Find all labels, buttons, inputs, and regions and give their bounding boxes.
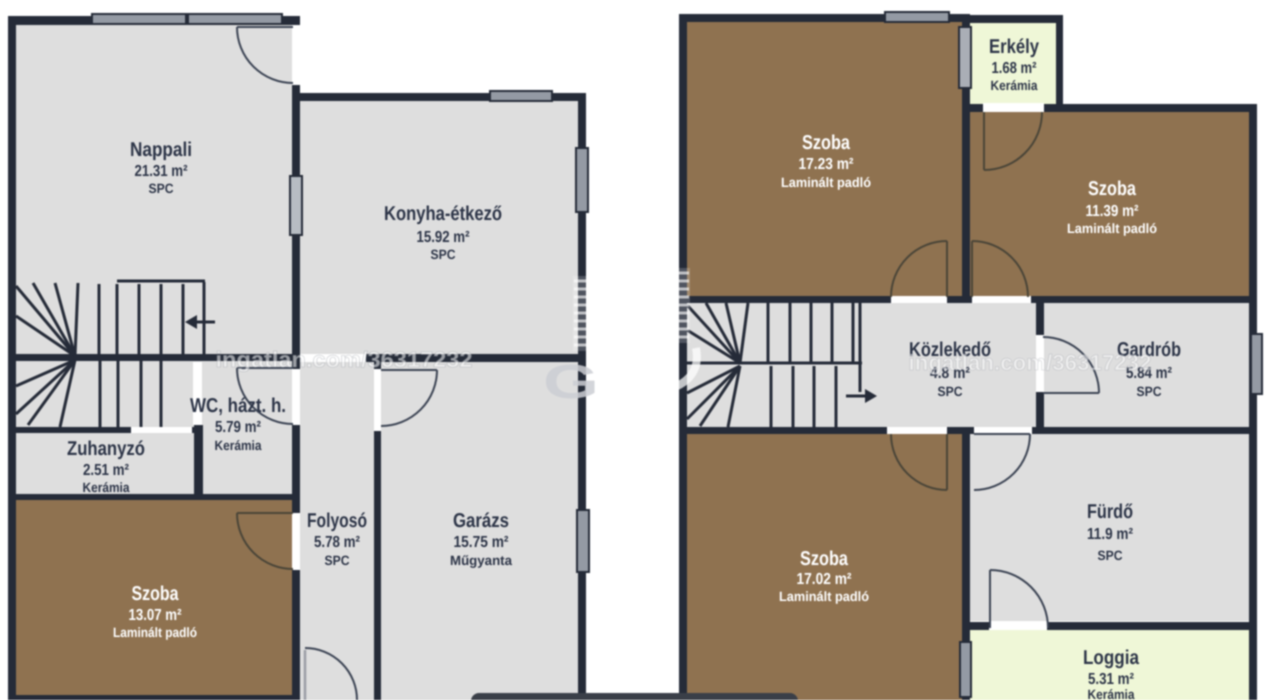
svg-text:Műgyanta: Műgyanta (450, 553, 512, 568)
svg-text:Szoba: Szoba (800, 548, 849, 570)
svg-text:11.39 m²: 11.39 m² (1086, 203, 1139, 220)
svg-text:Laminált padló: Laminált padló (1067, 221, 1157, 236)
svg-text:17.23 m²: 17.23 m² (799, 156, 854, 173)
svg-text:ingatlan.com/36317232: ingatlan.com/36317232 (909, 350, 1152, 375)
svg-text:SPC: SPC (325, 553, 350, 568)
svg-text:15.75 m²: 15.75 m² (454, 534, 509, 551)
svg-text:5.31 m²: 5.31 m² (1088, 671, 1134, 688)
svg-text:Erkély: Erkély (989, 36, 1040, 58)
svg-text:17.02 m²: 17.02 m² (797, 571, 852, 588)
svg-text:2.51 m²: 2.51 m² (83, 462, 129, 479)
svg-text:Loggia: Loggia (1083, 647, 1140, 669)
svg-text:Szoba: Szoba (132, 583, 180, 605)
svg-text:Nappali: Nappali (130, 139, 192, 161)
svg-text:SPC: SPC (149, 181, 174, 196)
svg-text:G: G (543, 356, 599, 409)
svg-text:Laminált padló: Laminált padló (113, 625, 197, 640)
svg-text:WC, házt. h.: WC, házt. h. (190, 395, 286, 417)
svg-text:Fürdő: Fürdő (1087, 501, 1133, 523)
svg-text:5.79 m²: 5.79 m² (215, 419, 261, 436)
svg-text:21.31 m²: 21.31 m² (135, 163, 188, 180)
svg-text:Kerámia: Kerámia (991, 78, 1038, 93)
svg-text:Konyha-étkező: Konyha-étkező (384, 203, 502, 225)
svg-text:11.9 m²: 11.9 m² (1087, 526, 1133, 543)
svg-text:15.92 m²: 15.92 m² (417, 229, 470, 246)
svg-text:Kerámia: Kerámia (83, 480, 130, 495)
svg-text:13.07 m²: 13.07 m² (129, 607, 182, 624)
svg-text:Szoba: Szoba (1088, 178, 1137, 200)
svg-text:Laminált padló: Laminált padló (781, 175, 871, 190)
svg-text:SPC: SPC (1137, 384, 1162, 399)
svg-text:Zuhanyzó: Zuhanyzó (67, 438, 145, 460)
svg-text:Garázs: Garázs (453, 510, 509, 532)
svg-text:Kerámia: Kerámia (215, 438, 262, 453)
svg-text:Kerámia: Kerámia (1088, 687, 1135, 700)
svg-text:1.68 m²: 1.68 m² (992, 60, 1037, 77)
svg-text:5.78 m²: 5.78 m² (314, 534, 360, 551)
svg-text:SPC: SPC (431, 247, 456, 262)
svg-text:ingatlan.com/36317232: ingatlan.com/36317232 (216, 347, 473, 372)
svg-text:Folyosó: Folyosó (307, 510, 367, 532)
svg-text:Szoba: Szoba (802, 132, 851, 154)
svg-text:Laminált padló: Laminált padló (779, 589, 869, 604)
svg-text:SPC: SPC (938, 384, 963, 399)
svg-text:SPC: SPC (1098, 548, 1123, 563)
